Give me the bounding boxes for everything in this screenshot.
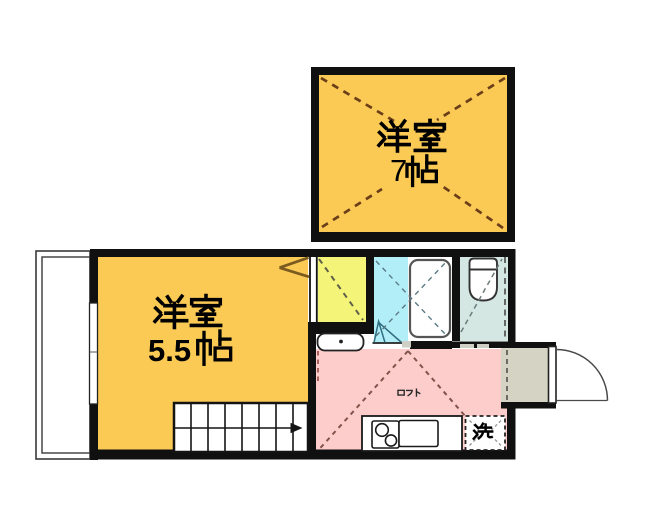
svg-text:5.5: 5.5	[148, 333, 191, 368]
svg-text:7: 7	[390, 153, 407, 188]
